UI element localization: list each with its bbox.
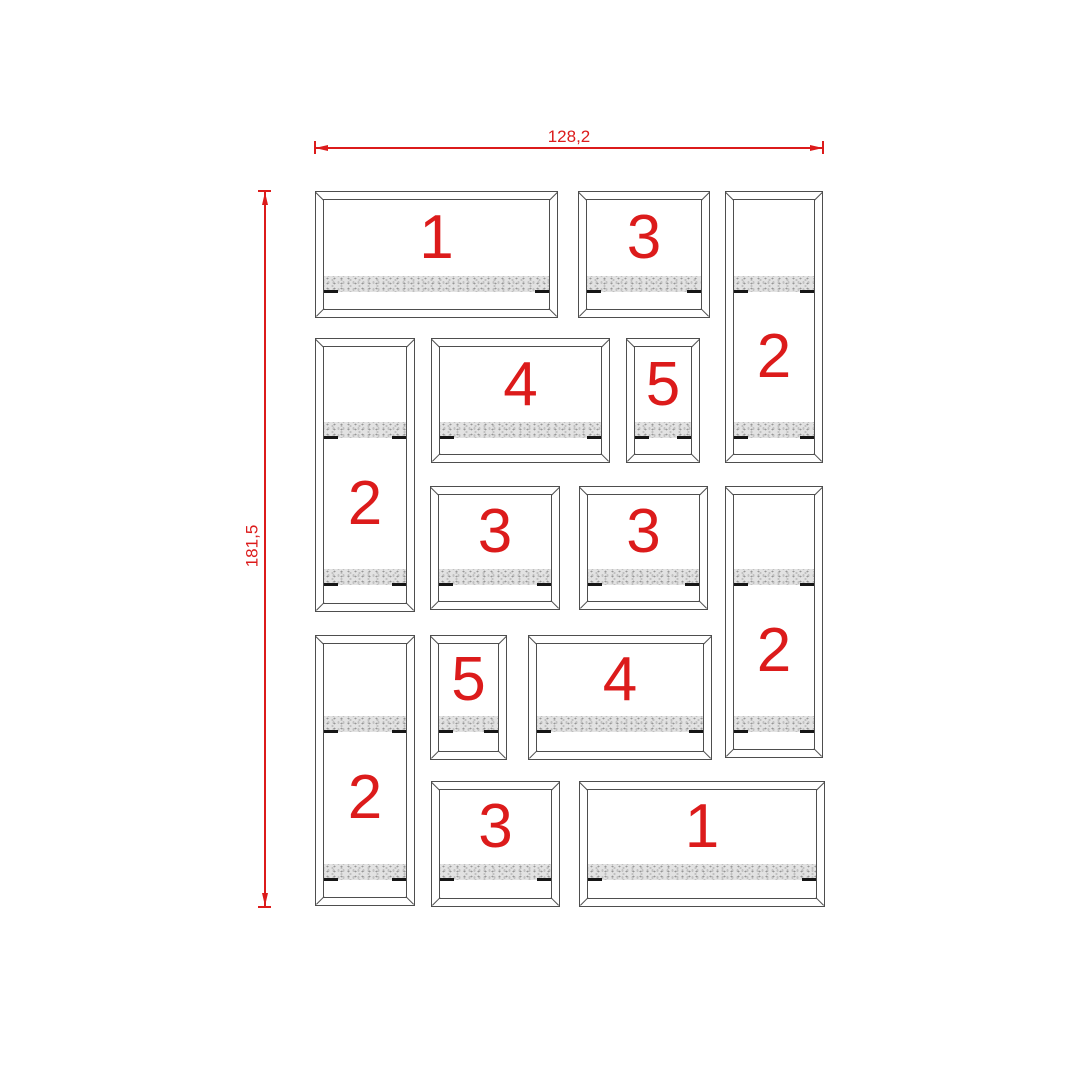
miter-corner-line [551, 600, 559, 608]
shelf-support-tick [734, 290, 748, 293]
frame-label: 5 [627, 354, 699, 416]
miter-corner-line [726, 453, 734, 461]
shelf-strip [440, 422, 601, 438]
miter-corner-line [528, 636, 536, 644]
shelf-support-tick [324, 583, 338, 586]
miter-corner-line [551, 487, 559, 495]
miter-corner-line [814, 748, 822, 756]
shelf-support-tick [588, 878, 602, 881]
frame-2: 2 [315, 635, 415, 906]
frame-5: 5 [430, 635, 507, 760]
miter-corner-line [432, 897, 440, 905]
miter-corner-line [814, 192, 822, 200]
shelf-support-tick [392, 436, 406, 439]
miter-corner-line [691, 453, 699, 461]
dimension-horizontal-value: 128,2 [315, 128, 823, 145]
shelf-support-tick [324, 730, 338, 733]
miter-corner-line [315, 636, 323, 644]
miter-corner-line [316, 602, 324, 610]
miter-corner-line [430, 487, 438, 495]
miter-corner-line [406, 636, 414, 644]
miter-corner-line [814, 453, 822, 461]
arrowhead-icon [262, 893, 268, 906]
shelf-support-tick [535, 290, 549, 293]
miter-corner-line [703, 750, 711, 758]
shelf-support-tick [537, 730, 551, 733]
miter-corner-line [551, 782, 559, 790]
miter-corner-line [432, 453, 440, 461]
miter-corner-line [431, 600, 439, 608]
miter-corner-line [816, 782, 824, 790]
shelf-strip [324, 276, 549, 292]
frame-3: 3 [578, 191, 710, 318]
frame-3: 3 [431, 781, 560, 907]
shelf-support-tick [587, 436, 601, 439]
shelf-support-tick [439, 730, 453, 733]
shelf-support-tick [537, 878, 551, 881]
miter-corner-line [579, 308, 587, 316]
shelf-support-tick [802, 878, 816, 881]
frame-3: 3 [430, 486, 560, 610]
frame-label: 2 [726, 326, 822, 388]
arrowhead-icon [262, 192, 268, 205]
shelf-support-tick [440, 436, 454, 439]
arrowhead-icon [810, 145, 823, 151]
miter-corner-line [316, 896, 324, 904]
shelf-support-tick [324, 878, 338, 881]
frame-label: 4 [529, 649, 711, 711]
shelf-support-tick [800, 583, 814, 586]
miter-corner-line [549, 308, 557, 316]
technical-drawing-canvas: 128,2 181,5 13224533225431 [0, 0, 1080, 1080]
shelf-support-tick [734, 436, 748, 439]
shelf-support-tick [685, 583, 699, 586]
miter-corner-line [406, 896, 414, 904]
frame-label: 3 [579, 207, 709, 269]
shelf-support-tick [587, 290, 601, 293]
shelf-support-tick [689, 730, 703, 733]
miter-corner-line [579, 782, 587, 790]
miter-corner-line [551, 897, 559, 905]
shelf-support-tick [734, 583, 748, 586]
miter-corner-line [579, 487, 587, 495]
shelf-support-tick [588, 583, 602, 586]
miter-corner-line [601, 453, 609, 461]
miter-corner-line [627, 453, 635, 461]
arrowhead-icon [315, 145, 328, 151]
miter-corner-line [315, 339, 323, 347]
frame-2: 2 [725, 191, 823, 463]
dimension-line [264, 191, 266, 907]
miter-corner-line [701, 308, 709, 316]
shelf-support-tick [687, 290, 701, 293]
shelf-support-tick [392, 878, 406, 881]
miter-corner-line [431, 750, 439, 758]
frame-label: 3 [432, 796, 559, 858]
shelf-strip [587, 276, 701, 292]
frame-2: 2 [725, 486, 823, 758]
miter-corner-line [580, 600, 588, 608]
shelf-support-tick [324, 436, 338, 439]
frame-1: 1 [315, 191, 558, 318]
frame-label: 2 [316, 767, 414, 829]
miter-corner-line [431, 339, 439, 347]
shelf-support-tick [800, 290, 814, 293]
miter-corner-line [725, 192, 733, 200]
frame-4: 4 [528, 635, 712, 760]
miter-corner-line [430, 636, 438, 644]
dimension-line [315, 147, 823, 149]
shelf-strip [440, 864, 551, 880]
miter-corner-line [699, 487, 707, 495]
miter-corner-line [315, 192, 323, 200]
shelf-strip [439, 569, 551, 585]
shelf-support-tick [392, 583, 406, 586]
frame-label: 1 [316, 207, 557, 269]
frame-label: 3 [431, 501, 559, 563]
miter-corner-line [626, 339, 634, 347]
shelf-support-tick [324, 290, 338, 293]
miter-corner-line [529, 750, 537, 758]
miter-corner-line [549, 192, 557, 200]
shelf-support-tick [677, 436, 691, 439]
miter-corner-line [725, 487, 733, 495]
frame-label: 5 [431, 649, 506, 711]
frame-label: 2 [316, 473, 414, 535]
frame-2: 2 [315, 338, 415, 612]
dimension-vertical-value: 181,5 [244, 525, 261, 568]
miter-corner-line [816, 897, 824, 905]
miter-corner-line [580, 897, 588, 905]
shelf-strip [588, 864, 816, 880]
miter-corner-line [703, 636, 711, 644]
shelf-strip [588, 569, 699, 585]
frame-label: 1 [580, 796, 824, 858]
extension-tick [258, 906, 271, 908]
miter-corner-line [498, 750, 506, 758]
frame-label: 4 [432, 354, 609, 416]
miter-corner-line [431, 782, 439, 790]
frame-label: 3 [580, 501, 707, 563]
miter-corner-line [601, 339, 609, 347]
miter-corner-line [699, 600, 707, 608]
miter-corner-line [498, 636, 506, 644]
frame-4: 4 [431, 338, 610, 463]
miter-corner-line [691, 339, 699, 347]
shelf-strip [537, 716, 703, 732]
miter-corner-line [701, 192, 709, 200]
shelf-support-tick [635, 436, 649, 439]
shelf-support-tick [800, 436, 814, 439]
frame-1: 1 [579, 781, 825, 907]
shelf-support-tick [439, 583, 453, 586]
miter-corner-line [406, 339, 414, 347]
shelf-support-tick [734, 730, 748, 733]
miter-corner-line [578, 192, 586, 200]
frame-3: 3 [579, 486, 708, 610]
miter-corner-line [726, 748, 734, 756]
shelf-support-tick [392, 730, 406, 733]
miter-corner-line [406, 602, 414, 610]
frame-5: 5 [626, 338, 700, 463]
shelf-support-tick [800, 730, 814, 733]
miter-corner-line [316, 308, 324, 316]
shelf-support-tick [484, 730, 498, 733]
shelf-support-tick [537, 583, 551, 586]
miter-corner-line [814, 487, 822, 495]
shelf-support-tick [440, 878, 454, 881]
frame-label: 2 [726, 620, 822, 682]
